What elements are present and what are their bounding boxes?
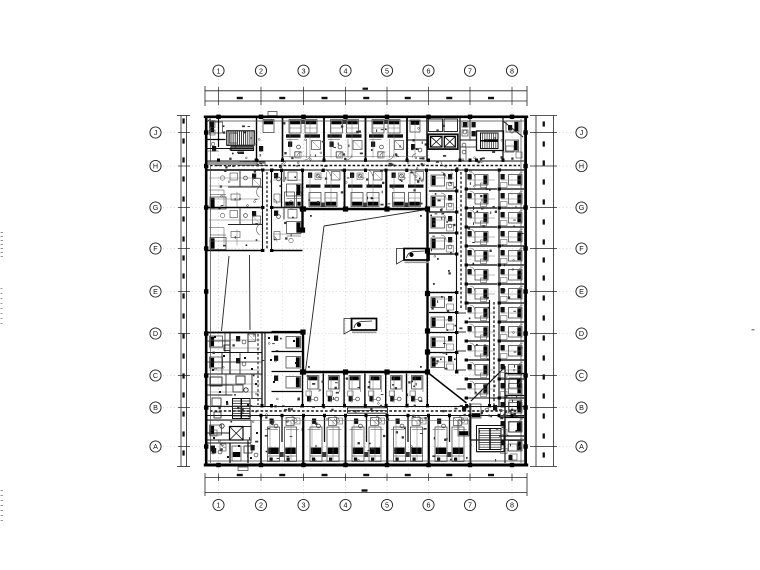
svg-text:F: F — [579, 244, 584, 253]
svg-text:B: B — [153, 403, 158, 412]
svg-text:5: 5 — [385, 66, 389, 75]
svg-text:J: J — [154, 128, 158, 137]
svg-text:6: 6 — [427, 501, 431, 510]
svg-text:E: E — [579, 287, 584, 296]
svg-text:2: 2 — [259, 66, 263, 75]
svg-text:D: D — [579, 329, 584, 338]
svg-text:7: 7 — [468, 66, 472, 75]
svg-text:7: 7 — [468, 501, 472, 510]
svg-text:G: G — [579, 203, 585, 212]
svg-text:C: C — [153, 371, 158, 380]
svg-text:E: E — [153, 287, 158, 296]
svg-text:1: 1 — [217, 66, 221, 75]
svg-text:B: B — [579, 403, 584, 412]
svg-text:H: H — [579, 162, 584, 171]
svg-text:2: 2 — [259, 501, 263, 510]
svg-text:C: C — [579, 371, 584, 380]
svg-text:8: 8 — [510, 501, 514, 510]
svg-text:F: F — [153, 244, 158, 253]
svg-text:4: 4 — [344, 501, 348, 510]
svg-text:J: J — [580, 128, 584, 137]
svg-text:4: 4 — [344, 66, 348, 75]
svg-text:3: 3 — [302, 66, 306, 75]
svg-text:1: 1 — [217, 501, 221, 510]
svg-text:A: A — [153, 442, 158, 451]
svg-text:6: 6 — [427, 66, 431, 75]
svg-text:A: A — [579, 442, 584, 451]
svg-text:8: 8 — [510, 66, 514, 75]
svg-text:3: 3 — [302, 501, 306, 510]
svg-text:H: H — [153, 162, 158, 171]
svg-text:5: 5 — [385, 501, 389, 510]
svg-text:D: D — [153, 329, 158, 338]
svg-text:G: G — [153, 203, 159, 212]
